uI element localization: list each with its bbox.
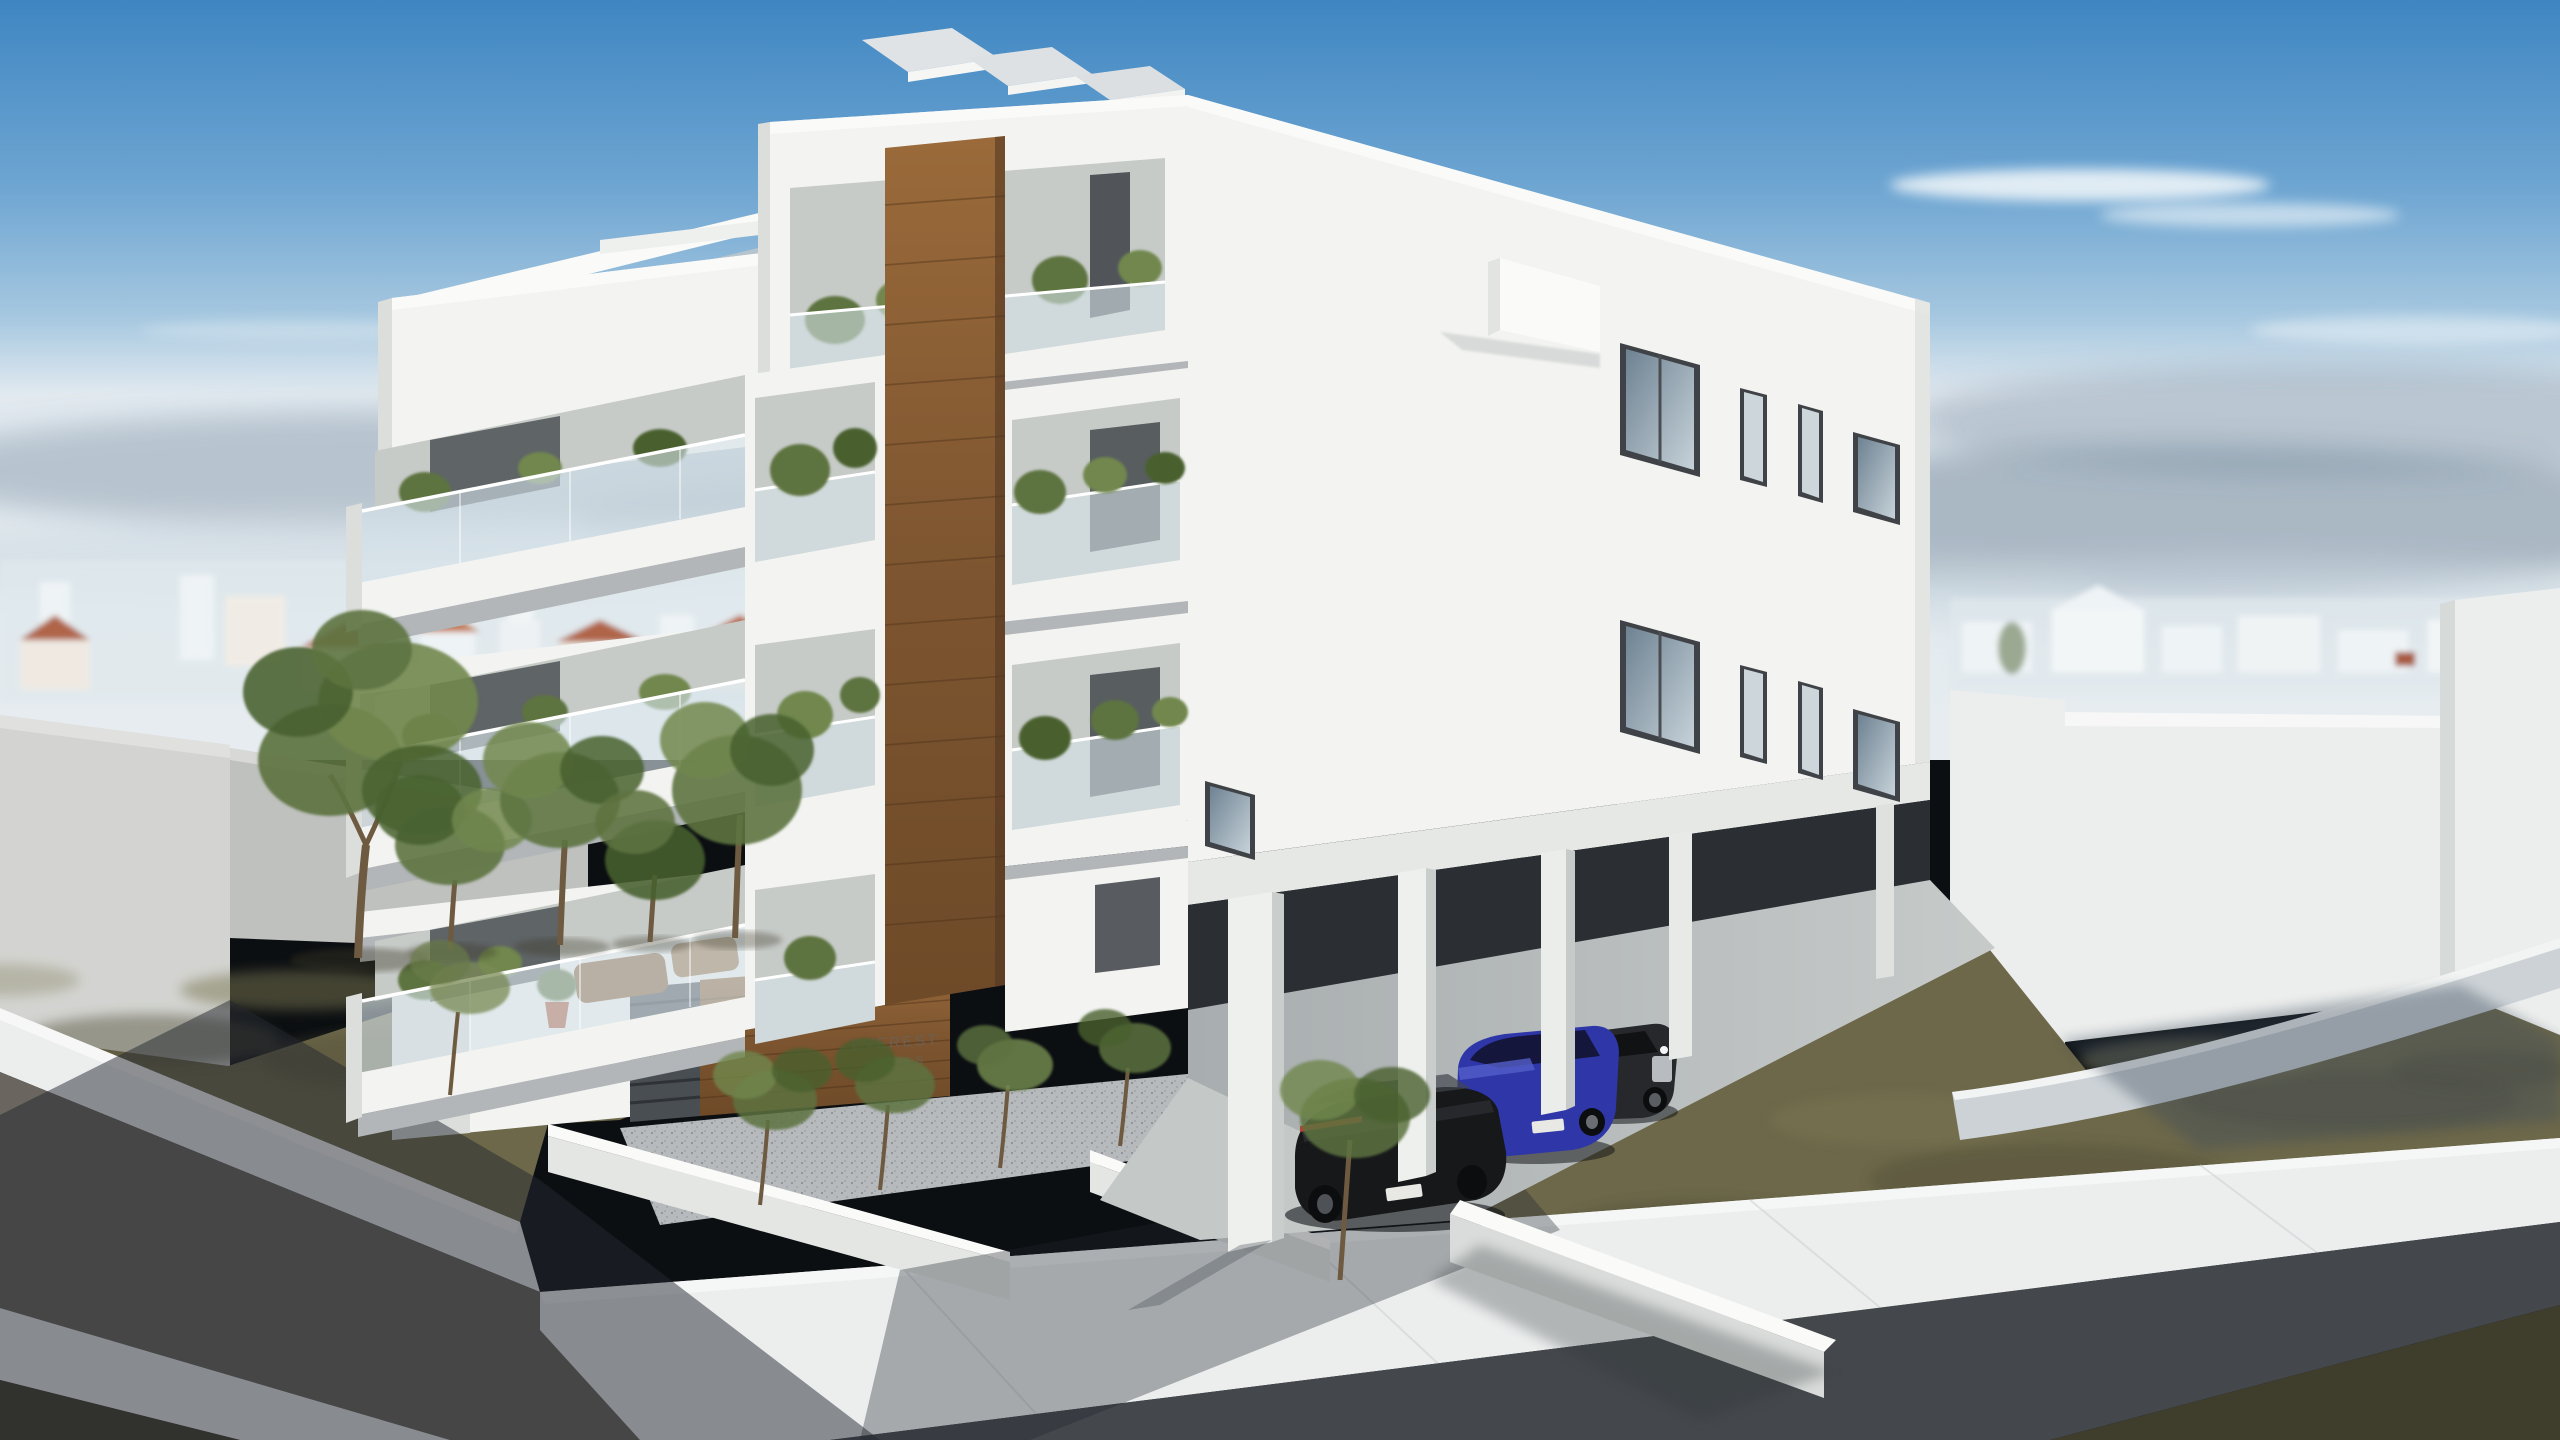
ground-window — [1095, 877, 1160, 973]
balcony-side-fin — [346, 993, 362, 1123]
column — [1669, 831, 1692, 1060]
rendered-photo: EVEREST HOMES — [0, 0, 2560, 1440]
corner-pier — [1228, 892, 1272, 1252]
wood-accent-band — [885, 136, 1005, 1005]
scene-canvas: EVEREST HOMES — [0, 0, 2560, 1440]
recessed-bays-right — [1005, 368, 1188, 1032]
column — [1541, 849, 1566, 1115]
column — [1876, 803, 1894, 979]
